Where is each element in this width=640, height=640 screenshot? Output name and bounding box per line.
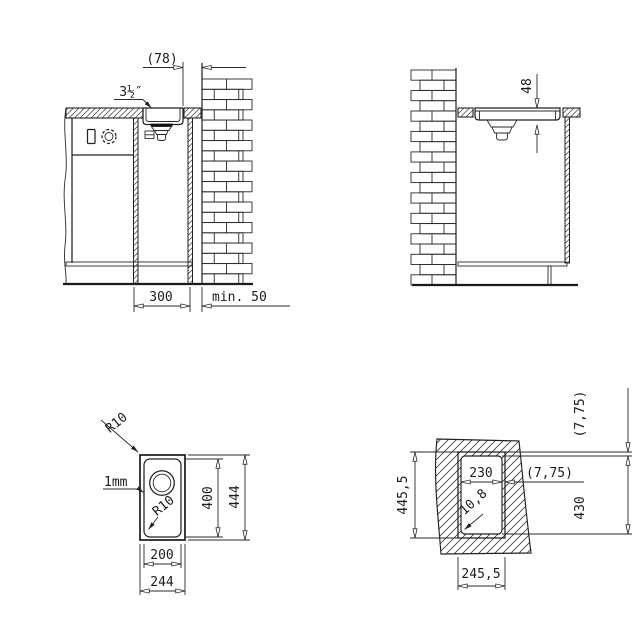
dim-top-ledge: (7,75) [573,391,588,438]
appliance-knob-center [105,133,113,141]
label-rim-thickness: 1mm [104,475,128,490]
dim-bowl-depth: 48 [520,78,535,94]
drain-body [492,127,512,133]
plan-view: R10 1mm R10 400 444 200 244 [101,410,250,595]
cabinet-plinth [548,266,551,285]
sink-bowl-inner [146,108,180,122]
drain-flange [487,120,517,127]
drain-hole-inner [153,474,171,492]
cabinet-shelf [458,262,567,266]
cabinet-wall-left [134,118,139,284]
sink-bowl-outline [143,108,183,125]
brick-wall-icon [202,79,252,284]
break-line [64,108,66,284]
drain-flange [152,127,172,131]
appliance-knob-icon [102,130,116,144]
dim-bowl-width: 200 [150,548,173,563]
drain-cup [497,133,508,140]
dim-bowl-length: 400 [201,486,216,509]
drain-cup [158,135,166,141]
cabinet-shelf [66,262,192,266]
dim-overall-width: 244 [150,575,174,590]
label-outer-radius: R10 [103,410,131,436]
dim-offset-to-wall: (78) [146,52,177,67]
side-section-view: (78) 3½″ 300 min. 50 [63,52,290,312]
dim-cutout-length: 430 [573,496,588,519]
cutout-plan-view: 445,5 (7,75) 430 230 (7,75) 10,8 245,5 [396,388,632,590]
leader-line [149,517,159,530]
dim-overall-length: 444 [228,485,243,509]
dim-cabinet-width: 300 [149,290,172,305]
appliance-display [88,130,96,144]
dim-side-ledge: (7,75) [526,466,573,481]
sink-installation-drawing: (78) 3½″ 300 min. 50 [0,0,640,640]
dim-recess-length: 445,5 [396,475,411,514]
sink-front-outline [475,108,560,120]
front-section-view: 48 [411,68,580,285]
brick-wall-icon [411,70,456,285]
countertop-right [563,108,580,117]
cabinet-wall-right [188,118,193,284]
countertop-left [458,108,473,117]
dim-recess-width: 245,5 [461,567,500,582]
label-drain-size: 3½″ [119,85,142,100]
dim-wall-clearance: min. 50 [212,290,267,305]
cabinet-wall-right [565,117,570,263]
label-inner-radius: R10 [150,493,178,519]
countertop-right [184,108,201,118]
leader-line [143,100,152,109]
technical-drawing-sheet: (78) 3½″ 300 min. 50 [0,0,640,640]
label-cutout-radius: 10,8 [457,486,490,518]
drain-body [155,131,168,135]
dim-cutout-width: 230 [469,466,492,481]
countertop-left [66,108,143,118]
